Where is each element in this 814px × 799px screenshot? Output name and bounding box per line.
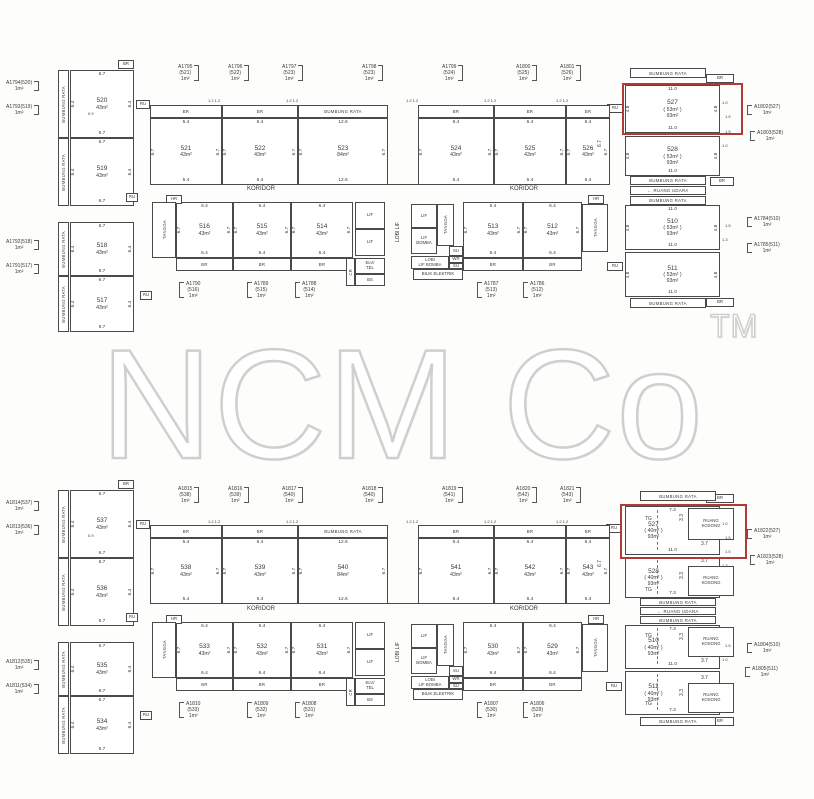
room-543: 54343m²6.46.46.76.7 xyxy=(566,538,610,604)
callout-a1794: A1794(520)1m² xyxy=(4,80,34,92)
dim-label: 3.3 xyxy=(680,689,686,696)
dim-label: 6.7 xyxy=(598,560,604,567)
callout-a1791: A1791(517)1m² xyxy=(4,263,34,275)
br-strip: BR xyxy=(566,525,610,538)
su-cell: SU xyxy=(449,246,463,256)
br-strip: BR xyxy=(176,678,233,691)
bumbung-rata-strip: BUMBUNG RATA xyxy=(640,717,716,726)
ru-box: RU xyxy=(140,711,152,720)
wr-cell: WR xyxy=(449,256,463,263)
room-514: 51443m²6.46.46.76.7 xyxy=(291,202,353,258)
bumbung-rata-strip: BUMBUNG RATA xyxy=(630,298,706,308)
lif-bomba-cell: LIFBOMBA xyxy=(411,648,437,674)
callout-a1814: A1814(537)1m² xyxy=(4,500,34,512)
lif-cell: LIF xyxy=(411,624,437,648)
br-strip: BR xyxy=(523,678,582,691)
tangga-cell: TANGGA xyxy=(582,204,608,252)
ruang-kosong-511: RUANGKOSONG xyxy=(688,683,734,713)
br-box: BR xyxy=(118,60,134,69)
tg-label: TG xyxy=(645,588,652,594)
bumbung-rata-strip: BUMBUNG RATA xyxy=(630,176,706,185)
br-strip: BR xyxy=(291,258,353,271)
callout-a1805: A1805(511)1m² xyxy=(750,666,780,678)
bs-cell: BS xyxy=(355,694,385,706)
room-523: 52384m²12.612.66.76.7 xyxy=(298,118,388,185)
room-530: 53043m²6.46.46.76.7 xyxy=(463,622,523,678)
callout-a1795: A1795(521)1m² xyxy=(176,64,194,82)
room-515: 51543m²6.46.46.76.7 xyxy=(233,202,291,258)
cr-cell: CR xyxy=(346,258,355,286)
cr-cell: CR xyxy=(346,678,355,706)
ru-box: RU xyxy=(136,520,150,529)
callout-a1797: A1797(523)1m² xyxy=(280,64,298,82)
dim-label: 1.0 xyxy=(722,143,728,149)
lobi-lif-bomba-cell: LOBILIF BOMBA xyxy=(411,676,449,689)
room-542: 54243m²6.46.46.76.7 xyxy=(494,538,566,604)
ru-box: RU xyxy=(126,613,138,622)
tg-label: TG xyxy=(645,634,652,640)
koridor-label: KORIDOR xyxy=(247,187,275,193)
br-strip: BR xyxy=(176,258,233,271)
room-513: 51343m²6.46.46.76.7 xyxy=(463,202,523,258)
ruang-udara-strip: ← RUANG UDARA xyxy=(630,186,706,195)
floorplan-canvas: NCM CoTM 52043m²6.76.76.46.451943m²6.76.… xyxy=(0,0,814,799)
bumbung-rata-strip: BUMBUNG RATA xyxy=(298,525,388,538)
dim-label: 1.2 1.2 xyxy=(406,98,418,104)
lobi-lif-label: LOBI LIF xyxy=(396,222,402,242)
bilik-elektrik-cell: BILIK ELEKTRIK xyxy=(413,689,463,700)
dim-label: 1.5 xyxy=(725,223,731,229)
tangga-cell: TANGGA xyxy=(437,624,454,666)
ru-box: RU xyxy=(136,100,150,109)
hr-box: HR xyxy=(588,195,604,204)
dim-label: 1.3 xyxy=(722,237,728,243)
room-524: 52443m²6.46.46.76.7 xyxy=(418,118,494,185)
callout-a1804: A1804(510)1m² xyxy=(752,642,782,654)
bs-cell: BS xyxy=(355,274,385,286)
br-strip: BR xyxy=(233,258,291,271)
dim-label: 1.2 1.2 xyxy=(556,519,568,525)
tangga-cell: TANGGA xyxy=(152,202,176,258)
bumbung-rata-vstrip: BUMBUNG RATA xyxy=(58,490,69,558)
callout-a1787: A1787(513)1m² xyxy=(482,281,500,299)
ruang-kosong-510: RUANGKOSONG xyxy=(688,627,734,657)
callout-a1812: A1812(535)1m² xyxy=(4,659,34,671)
br-strip: BR xyxy=(463,258,523,271)
room-518: 51843m²6.76.76.46.4 xyxy=(70,222,134,276)
br-strip: BR xyxy=(222,525,298,538)
dim-label: 1.2 1.2 xyxy=(484,519,496,525)
room-528-upper: 528( 53m² )93m²11.04.84.8 xyxy=(625,136,720,176)
room-531: 53143m²6.46.46.76.7 xyxy=(291,622,353,678)
elv-tel-cell: ELV/TEL xyxy=(355,258,385,274)
room-519: 51943m²6.76.76.46.4 xyxy=(70,138,134,206)
room-539: 53943m²6.46.46.76.7 xyxy=(222,538,298,604)
bumbung-rata-vstrip: BUMBUNG RATA xyxy=(58,138,69,206)
dim-label: 1.2 1.2 xyxy=(406,519,418,525)
room-532: 53243m²6.46.46.76.7 xyxy=(233,622,291,678)
bumbung-rata-vstrip: BUMBUNG RATA xyxy=(58,70,69,138)
br-box: BR xyxy=(706,298,734,307)
room-536: 53643m²6.76.76.46.4 xyxy=(70,558,134,626)
lif-cell: LIF xyxy=(355,202,385,229)
br-strip: BR xyxy=(150,105,222,118)
callout-a1798: A1798(523)1m² xyxy=(360,64,378,82)
callout-a1788: A1788(514)1m² xyxy=(300,281,318,299)
dim-label: 1.2 1.2 xyxy=(286,519,298,525)
tangga-cell: TANGGA xyxy=(152,622,176,678)
dim-label: 1.2 1.2 xyxy=(286,98,298,104)
callout-a1813: A1813(536)1m² xyxy=(4,524,34,536)
br-strip: BR xyxy=(418,105,494,118)
room-520: 52043m²6.76.76.46.4 xyxy=(70,70,134,138)
dim-label: 3.7 xyxy=(701,659,708,665)
dim-label: 3.3 xyxy=(680,633,686,640)
dim-label: 3.7 xyxy=(701,676,708,682)
lobi-lif-label: LOBI LIF xyxy=(396,642,402,662)
tg-label: TG xyxy=(645,702,652,708)
lif-cell: LIF xyxy=(355,622,385,649)
callout-a1803: A1803(528)1m² xyxy=(755,130,785,142)
lif-cell: LIF xyxy=(355,229,385,256)
callout-a1808: A1808(531)1m² xyxy=(300,701,318,719)
dim-label: 6.7 xyxy=(598,140,604,147)
bumbung-rata-vstrip: BUMBUNG RATA xyxy=(58,642,69,696)
wr-cell: WR xyxy=(449,676,463,683)
bumbung-rata-strip: BUMBUNG RATA xyxy=(630,196,706,205)
ru-box: RU xyxy=(126,193,138,202)
dim-label: 1.3 xyxy=(722,563,728,569)
room-540: 54084m²12.612.66.76.7 xyxy=(298,538,388,604)
br-strip: BR xyxy=(233,678,291,691)
callout-a1802: A1802(527)1m² xyxy=(752,104,782,116)
watermark-tm: TM xyxy=(710,308,758,344)
bilik-elektrik-cell: BILIK ELEKTRIK xyxy=(413,269,463,280)
room-511-upper: 511( 53m² )93m²11.04.84.8 xyxy=(625,252,720,297)
bumbung-rata-strip: BUMBUNG RATA xyxy=(630,68,706,78)
ruang-udara-strip: ← RUANG UDARA xyxy=(640,607,716,615)
ruang-kosong-528: RUANGKOSONG xyxy=(688,566,734,596)
room-529: 52943m²6.46.46.76.7 xyxy=(523,622,582,678)
bumbung-rata-strip: BUMBUNG RATA xyxy=(640,598,716,606)
callout-a1811: A1811(534)1m² xyxy=(4,683,34,695)
dim-label: 1.2 1.2 xyxy=(208,98,220,104)
hr-box: HR xyxy=(588,615,604,624)
callout-a1800: A1800(525)1m² xyxy=(514,64,532,82)
elv-tel-cell: ELV/TEL xyxy=(355,678,385,694)
room-512: 51243m²6.46.46.76.7 xyxy=(523,202,582,258)
callout-a1790: A1790(516)1m² xyxy=(184,281,202,299)
dim-label: 1.2 1.2 xyxy=(208,519,220,525)
br-strip: BR xyxy=(222,105,298,118)
ru-box: RU xyxy=(607,262,623,271)
bumbung-rata-vstrip: BUMBUNG RATA xyxy=(58,222,69,276)
callout-a1799: A1799(524)1m² xyxy=(440,64,458,82)
br-strip: BR xyxy=(291,678,353,691)
room-538: 53843m²5.45.46.76.7 xyxy=(150,538,222,604)
br-strip: BR xyxy=(150,525,222,538)
room-525: 52543m²6.46.46.76.7 xyxy=(494,118,566,185)
connector-line xyxy=(388,603,418,604)
br-strip: BR xyxy=(463,678,523,691)
room-516: 51643m²6.46.46.76.7 xyxy=(176,202,233,258)
dashed-partition-line xyxy=(657,674,658,710)
br-strip: BR xyxy=(494,105,566,118)
callout-a1784: A1784(510)1m² xyxy=(752,216,782,228)
callout-a1792: A1792(518)1m² xyxy=(4,239,34,251)
room-521: 52143m²5.45.46.76.7 xyxy=(150,118,222,185)
callout-a1806: A1806(529)1m² xyxy=(528,701,546,719)
dim-label: 1.0 xyxy=(722,657,728,663)
callout-a1807: A1807(530)1m² xyxy=(482,701,500,719)
ru-box: RU xyxy=(606,682,622,691)
dashed-partition-line xyxy=(657,628,658,664)
bumbung-rata-strip: BUMBUNG RATA xyxy=(298,105,388,118)
room-526: 52643m²6.46.46.76.7 xyxy=(566,118,610,185)
tangga-cell: TANGGA xyxy=(437,204,454,246)
callout-a1785: A1785(511)1m² xyxy=(752,242,782,254)
ru-box: RU xyxy=(140,291,152,300)
highlight-box xyxy=(620,504,747,559)
lif-cell: LIF xyxy=(355,649,385,676)
callout-a1801: A1801(526)1m² xyxy=(558,64,576,82)
callout-a1809: A1809(532)1m² xyxy=(252,701,270,719)
room-510-upper: 510( 53m² )93m²11.011.04.84.8 xyxy=(625,205,720,250)
tangga-cell: TANGGA xyxy=(582,624,608,672)
lif-bomba-cell: LIFBOMBA xyxy=(411,228,437,254)
bumbung-rata-vstrip: BUMBUNG RATA xyxy=(58,558,69,626)
room-535: 53543m²6.76.76.46.4 xyxy=(70,642,134,696)
room-522: 52243m²6.46.46.76.7 xyxy=(222,118,298,185)
dim-label: 3.7 xyxy=(701,559,708,565)
bumbung-rata-vstrip: BUMBUNG RATA xyxy=(58,276,69,332)
bumbung-rata-strip: BUMBUNG RATA xyxy=(640,616,716,624)
room-534: 53443m²6.76.76.46.4 xyxy=(70,696,134,754)
br-box: BR xyxy=(710,177,734,186)
dim-label: 0.9 xyxy=(88,533,94,539)
watermark: NCM CoTM xyxy=(100,316,758,495)
lif-cell: LIF xyxy=(411,204,437,228)
bumbung-rata-vstrip: BUMBUNG RATA xyxy=(58,696,69,754)
callout-a1789: A1789(515)1m² xyxy=(252,281,270,299)
callout-a1823: A1823(528)1m² xyxy=(755,554,785,566)
watermark-text: NCM Co xyxy=(100,318,704,492)
room-537: 53743m²6.76.76.46.4 xyxy=(70,490,134,558)
koridor-label: KORIDOR xyxy=(247,607,275,613)
callout-a1793: A1793(519)1m² xyxy=(4,104,34,116)
koridor-label: KORIDOR xyxy=(510,187,538,193)
br-strip: BR xyxy=(418,525,494,538)
callout-a1786: A1786(512)1m² xyxy=(528,281,546,299)
room-541: 54143m²6.46.46.76.7 xyxy=(418,538,494,604)
dim-label: 1.2 1.2 xyxy=(484,98,496,104)
room-533: 53343m²6.46.46.76.7 xyxy=(176,622,233,678)
br-strip: BR xyxy=(566,105,610,118)
dim-label: 0.9 xyxy=(88,111,94,117)
callout-a1810: A1810(533)1m² xyxy=(184,701,202,719)
lobi-lif-bomba-cell: LOBILIF BOMBA xyxy=(411,256,449,269)
connector-line xyxy=(388,184,418,185)
br-box: BR xyxy=(706,74,734,83)
highlight-box xyxy=(622,83,743,135)
su-cell: SU xyxy=(449,666,463,676)
callout-a1796: A1796(522)1m² xyxy=(226,64,244,82)
br-strip: BR xyxy=(494,525,566,538)
koridor-label: KORIDOR xyxy=(510,607,538,613)
br-strip: BR xyxy=(523,258,582,271)
callout-a1822: A1822(527)1m² xyxy=(752,528,782,540)
dim-label: 1.5 xyxy=(725,643,731,649)
dim-label: 3.3 xyxy=(680,572,686,579)
dim-label: 1.2 1.2 xyxy=(556,98,568,104)
dashed-partition-line xyxy=(657,560,658,594)
